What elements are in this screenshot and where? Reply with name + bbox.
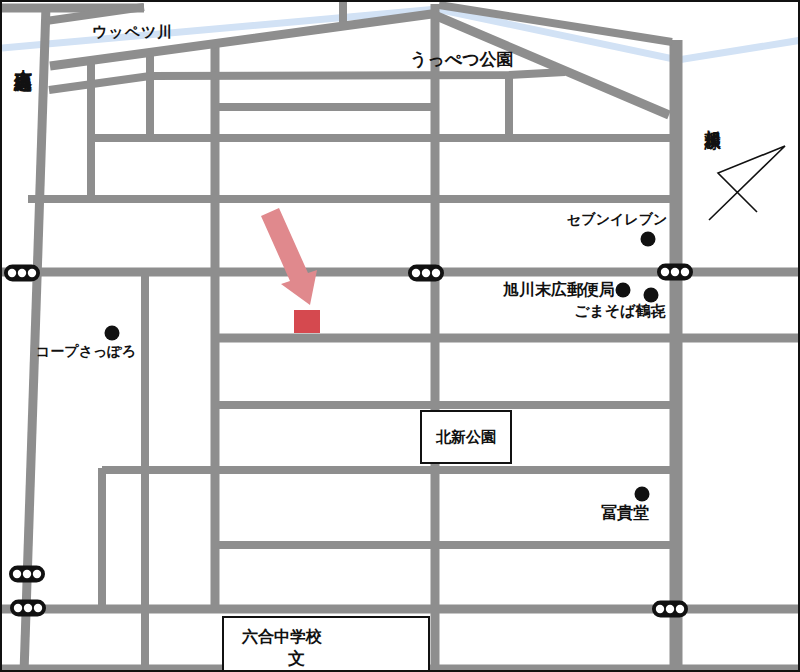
destination-arrow-icon	[261, 208, 317, 305]
poi-label-fukido: 冨貴堂	[601, 505, 649, 522]
poi-label-post-office: 旭川末広郵便局	[503, 282, 615, 299]
road-network	[2, 2, 800, 672]
road-label-kanjo: 旭川環状線	[704, 117, 721, 122]
park-label-kitashin: 北新公園	[436, 429, 496, 445]
north-arrow-icon	[709, 146, 785, 220]
poi-dot-soba	[644, 288, 659, 303]
poi-dot-seven-eleven	[641, 232, 656, 247]
school-label: 六合中学校	[242, 629, 322, 646]
poi-label-soba: ごまそば鶴㐂	[574, 303, 665, 319]
kitashin-park-box: 北新公園	[420, 410, 512, 464]
poi-dot-post-office	[616, 283, 631, 298]
access-map: ウッペツ川 末広高台通線 うっぺつ公園 旭川環状線 セブンイレブン 旭川末広郵便…	[0, 0, 800, 672]
roads	[2, 2, 800, 672]
river-label: ウッペツ川	[92, 24, 173, 40]
poi-label-seven-eleven: セブンイレブン	[567, 212, 667, 227]
school-mark: 文	[288, 650, 305, 668]
traffic-light-icon	[10, 600, 46, 617]
traffic-light-icon	[408, 265, 444, 282]
traffic-light-icon	[4, 265, 40, 282]
school-box: 六合中学校 文	[222, 616, 430, 672]
poi-label-coop: コープさっぽろ	[36, 344, 136, 359]
poi-dot-coop	[105, 326, 120, 341]
traffic-light-icon	[9, 566, 45, 583]
traffic-light-icon	[657, 264, 693, 281]
park-label-uppetsu: うっぺつ公園	[410, 51, 514, 69]
road-upper-horizontal	[49, 72, 565, 90]
road-label-suehiro: 末広高台通線	[13, 55, 32, 61]
destination-marker	[294, 310, 320, 333]
traffic-light-icon	[652, 601, 688, 618]
poi-dot-fukido	[635, 487, 650, 502]
